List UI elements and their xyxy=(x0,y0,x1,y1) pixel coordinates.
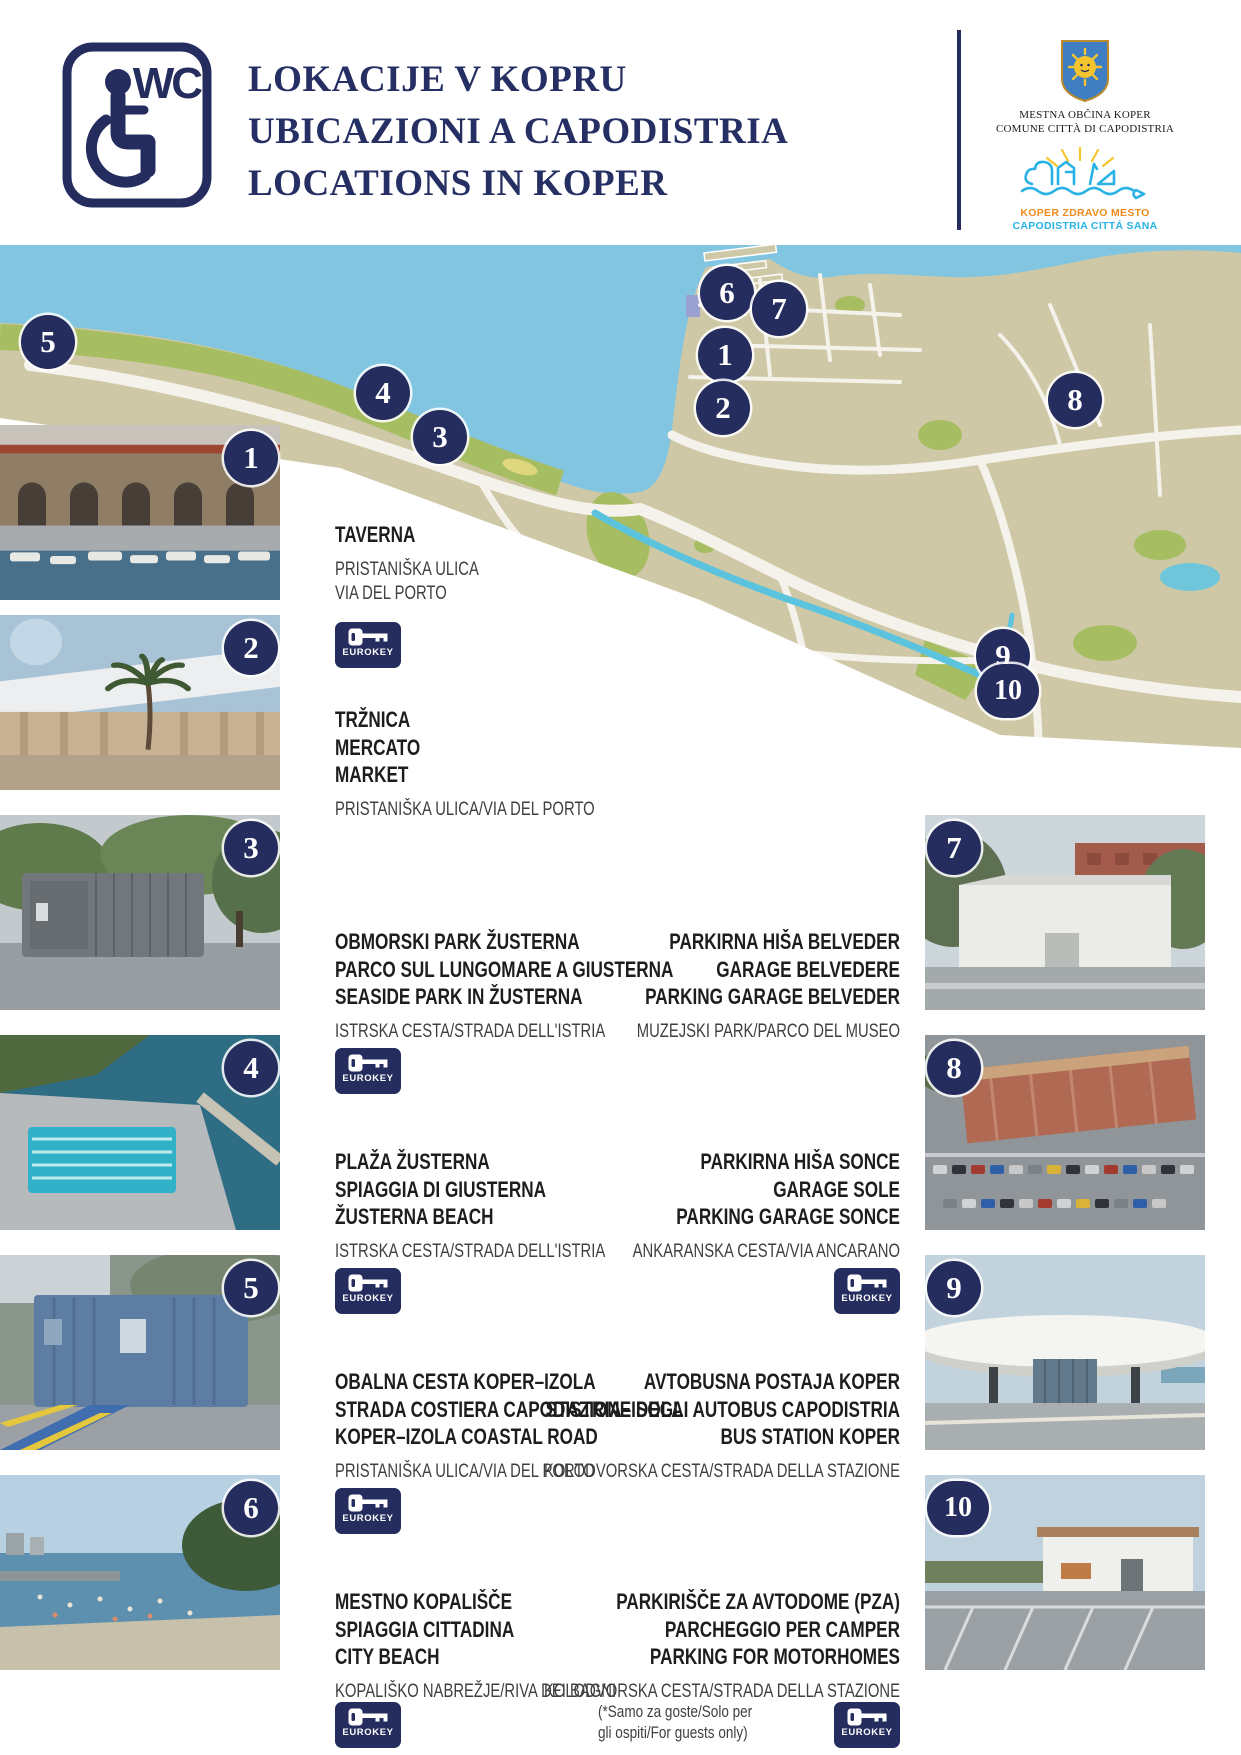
photo-number-badge-4: 4 xyxy=(224,1041,278,1095)
eurokey-badge-3: EUROKEY xyxy=(335,1048,401,1094)
location-block-7: PARKIRNA HIŠA BELVEDER GARAGE BELVEDERE … xyxy=(430,928,900,1044)
eurokey-label: EUROKEY xyxy=(335,1294,401,1304)
eurokey-badge-5: EUROKEY xyxy=(335,1488,401,1534)
location-block-9: AVTOBUSNA POSTAJA KOPER STAZIONE DEGLI A… xyxy=(430,1368,900,1484)
municipality-shield-icon xyxy=(1061,40,1109,102)
map-marker-2: 2 xyxy=(696,381,750,435)
location-name: TAVERNA xyxy=(335,521,702,549)
eurokey-badge-8: EUROKEY xyxy=(834,1268,900,1314)
map-marker-3: 3 xyxy=(413,410,467,464)
key-icon xyxy=(348,1493,388,1513)
title-line-en: LOCATIONS IN KOPER xyxy=(248,158,788,210)
photo-number-badge-7: 7 xyxy=(927,821,981,875)
map-marker-7: 7 xyxy=(752,282,806,336)
location-name: PARKIRNA HIŠA BELVEDER GARAGE BELVEDERE … xyxy=(533,928,900,1011)
eurokey-label: EUROKEY xyxy=(335,1074,401,1084)
eurokey-badge-10: EUROKEY xyxy=(834,1702,900,1748)
location-name: PARKIRNA HIŠA SONCE GARAGE SOLE PARKING … xyxy=(533,1148,900,1231)
municipality-logo-text: MESTNA OBČINA KOPER COMUNE CITTÀ DI CAPO… xyxy=(985,108,1185,136)
eurokey-badge-1: EUROKEY xyxy=(335,622,401,668)
location-block-1: TAVERNA PRISTANIŠKA ULICA VIA DEL PORTO xyxy=(335,521,805,606)
location-block-8: PARKIRNA HIŠA SONCE GARAGE SOLE PARKING … xyxy=(430,1148,900,1264)
map-marker-8: 8 xyxy=(1048,373,1102,427)
title-line-sl: LOKACIJE V KOPRU xyxy=(248,54,788,106)
photo-number-badge-3: 3 xyxy=(224,821,278,875)
eurokey-label: EUROKEY xyxy=(834,1294,900,1304)
key-icon xyxy=(348,1053,388,1073)
key-icon xyxy=(348,627,388,647)
key-icon xyxy=(847,1707,887,1727)
location-address: KOLODVORSKA CESTA/STRADA DELLA STAZIONE xyxy=(533,1680,900,1704)
map-marker-6: 6 xyxy=(700,266,754,320)
eurokey-label: EUROKEY xyxy=(335,648,401,658)
map-marker-1: 1 xyxy=(698,328,752,382)
location-address: PRISTANIŠKA ULICA VIA DEL PORTO xyxy=(335,558,702,606)
page-title: LOKACIJE V KOPRU UBICAZIONI A CAPODISTRI… xyxy=(248,54,788,210)
location-address: MUZEJSKI PARK/PARCO DEL MUSEO xyxy=(533,1020,900,1044)
header-divider xyxy=(957,30,961,230)
location-address: KOLODVORSKA CESTA/STRADA DELLA STAZIONE xyxy=(533,1460,900,1484)
eurokey-badge-6: EUROKEY xyxy=(335,1702,401,1748)
eurokey-label: EUROKEY xyxy=(335,1514,401,1524)
location-name: TRŽNICA MERCATO MARKET xyxy=(335,706,702,789)
photo-number-badge-1: 1 xyxy=(224,431,278,485)
key-icon xyxy=(348,1273,388,1293)
key-icon xyxy=(348,1707,388,1727)
location-block-10: PARKIRIŠČE ZA AVTODOME (PZA) PARCHEGGIO … xyxy=(430,1588,900,1704)
guests-only-note: (*Samo za goste/Solo per gli ospiti/For … xyxy=(598,1702,795,1744)
key-icon xyxy=(847,1273,887,1293)
map-marker-10: 10 xyxy=(977,664,1039,718)
wc-label: WC xyxy=(133,59,203,108)
photo-number-badge-2: 2 xyxy=(224,621,278,675)
photo-number-badge-6: 6 xyxy=(224,1481,278,1535)
eurokey-label: EUROKEY xyxy=(335,1728,401,1738)
poster-page: WC LOKACIJE V KOPRU UBICAZIONI A CAPODIS… xyxy=(0,0,1241,1755)
photo-number-badge-9: 9 xyxy=(927,1261,981,1315)
eurokey-badge-4: EUROKEY xyxy=(335,1268,401,1314)
title-line-it: UBICAZIONI A CAPODISTRIA xyxy=(248,106,788,158)
logo-column: MESTNA OBČINA KOPER COMUNE CITTÀ DI CAPO… xyxy=(985,40,1185,233)
map-marker-4: 4 xyxy=(356,366,410,420)
location-block-2: TRŽNICA MERCATO MARKET PRISTANIŠKA ULICA… xyxy=(335,706,805,822)
photo-number-badge-5: 5 xyxy=(224,1261,278,1315)
photo-number-badge-10: 10 xyxy=(927,1481,989,1535)
location-address: PRISTANIŠKA ULICA/VIA DEL PORTO xyxy=(335,798,702,822)
location-name: AVTOBUSNA POSTAJA KOPER STAZIONE DEGLI A… xyxy=(533,1368,900,1451)
healthy-city-logo-text: KOPER ZDRAVO MESTO CAPODISTRIA CITTÁ SAN… xyxy=(985,207,1185,233)
wheelchair-wc-icon: WC xyxy=(62,42,212,208)
location-address: ANKARANSKA CESTA/VIA ANCARANO xyxy=(533,1240,900,1264)
healthy-city-logo-icon xyxy=(1010,144,1160,202)
location-name: PARKIRIŠČE ZA AVTODOME (PZA) PARCHEGGIO … xyxy=(533,1588,900,1671)
photo-number-badge-8: 8 xyxy=(927,1041,981,1095)
map-marker-5: 5 xyxy=(21,315,75,369)
eurokey-label: EUROKEY xyxy=(834,1728,900,1738)
